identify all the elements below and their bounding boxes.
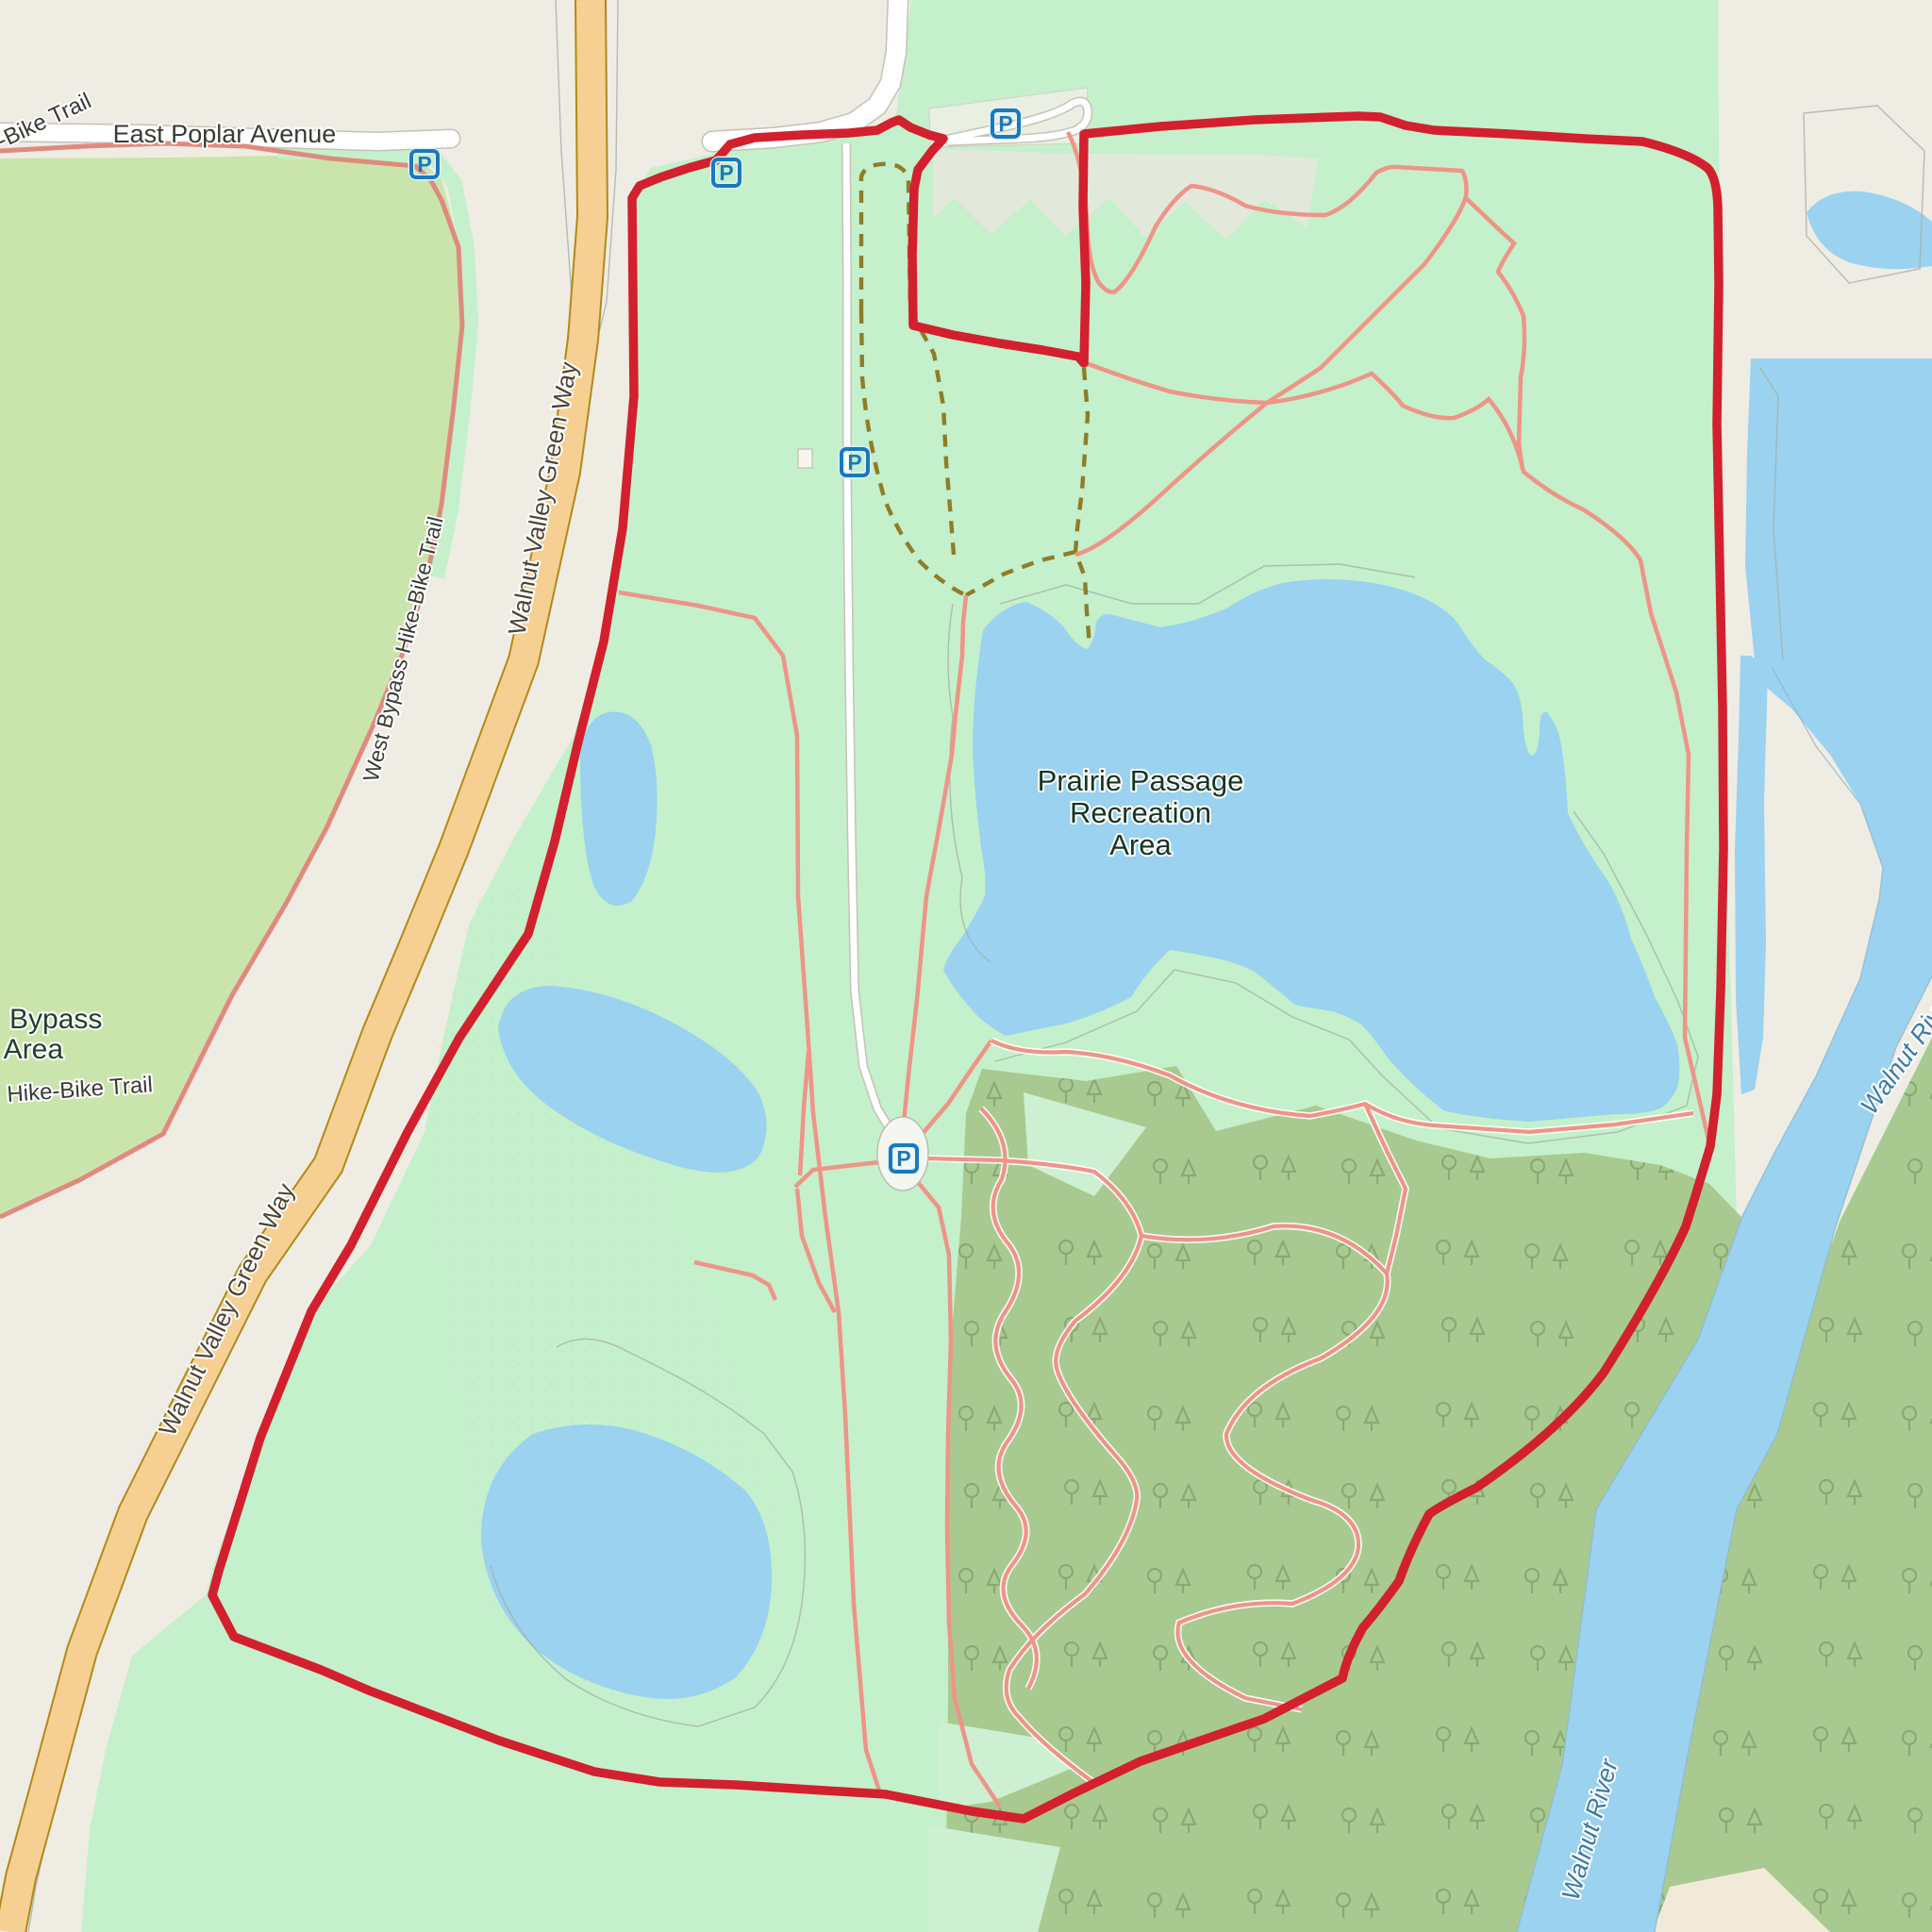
svg-text:P: P xyxy=(847,450,861,475)
svg-text:P: P xyxy=(719,160,733,185)
svg-text:Recreation: Recreation xyxy=(1070,796,1211,829)
svg-text:c Area: c Area xyxy=(0,1034,63,1065)
svg-text:P: P xyxy=(998,111,1012,136)
svg-text:East Poplar Avenue: East Poplar Avenue xyxy=(113,120,337,148)
svg-text:P: P xyxy=(417,152,431,176)
svg-text:Area: Area xyxy=(1109,828,1172,861)
svg-text:P: P xyxy=(896,1146,910,1171)
svg-text:Prairie Passage: Prairie Passage xyxy=(1038,764,1244,797)
svg-text:Bypass: Bypass xyxy=(9,1004,102,1035)
